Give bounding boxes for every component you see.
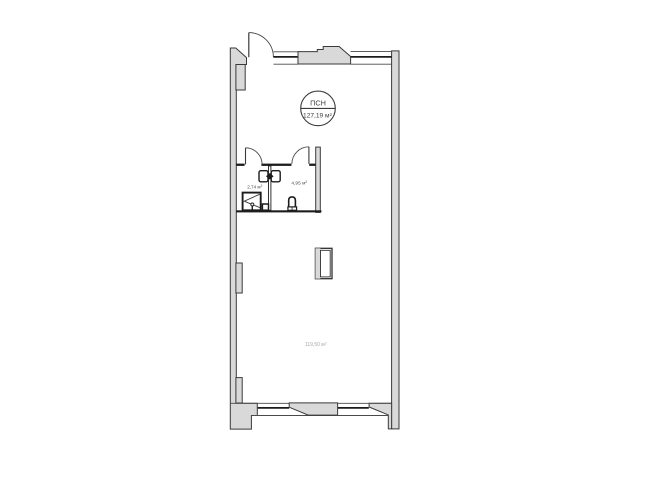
svg-text:127,19 м2: 127,19 м2 (303, 112, 333, 120)
svg-text:119,50 м2: 119,50 м2 (305, 342, 327, 349)
svg-text:2,74 м2: 2,74 м2 (247, 184, 262, 189)
svg-text:4,95 м2: 4,95 м2 (291, 180, 307, 186)
svg-text:ПСН: ПСН (310, 99, 326, 108)
